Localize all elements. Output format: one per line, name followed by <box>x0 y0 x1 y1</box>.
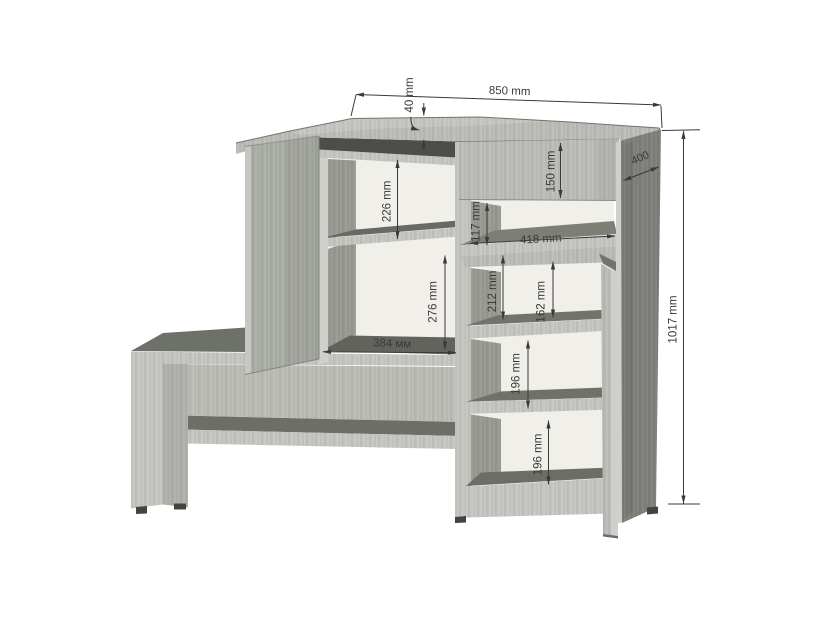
svg-text:196 mm: 196 mm <box>511 353 523 395</box>
svg-text:196 mm: 196 mm <box>533 434 545 476</box>
svg-text:226 mm: 226 mm <box>381 181 393 223</box>
svg-text:384 мм: 384 мм <box>373 337 412 350</box>
svg-text:1017 mm: 1017 mm <box>668 296 680 344</box>
svg-text:40 mm: 40 mm <box>404 77 416 112</box>
svg-text:276 mm: 276 mm <box>428 281 440 323</box>
svg-text:162 mm: 162 mm <box>536 281 548 323</box>
svg-text:117 mm: 117 mm <box>471 201 483 242</box>
svg-text:850 mm: 850 mm <box>489 85 531 98</box>
svg-text:418 mm: 418 mm <box>520 232 562 246</box>
svg-text:212 mm: 212 mm <box>487 271 499 313</box>
svg-text:150 mm: 150 mm <box>546 151 558 193</box>
